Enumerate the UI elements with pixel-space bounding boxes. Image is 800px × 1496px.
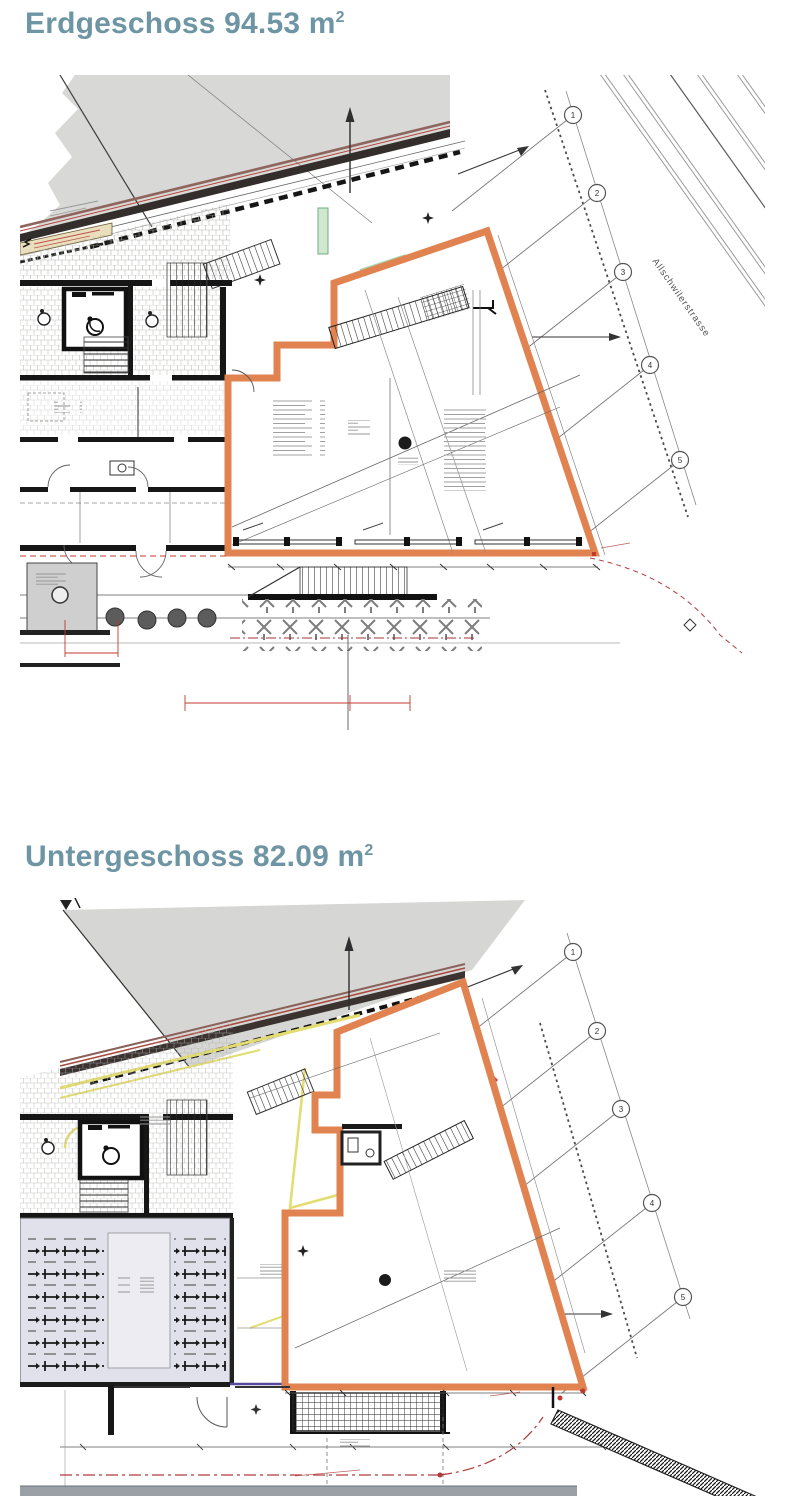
stair-run xyxy=(84,337,128,373)
svg-text:3: 3 xyxy=(621,268,626,277)
wc-room xyxy=(342,1132,380,1164)
floor-name: Erdgeschoss xyxy=(25,7,216,40)
axis-marker-3: 3 xyxy=(613,1101,630,1118)
axis-marker-1: 1 xyxy=(565,107,582,124)
floor-name: Untergeschoss xyxy=(25,840,244,873)
retaining-wall xyxy=(551,1410,755,1496)
bollard xyxy=(198,609,216,627)
annotation-block xyxy=(444,1268,476,1282)
axis-marker-4: 4 xyxy=(644,1195,661,1212)
star-symbol xyxy=(251,1404,262,1415)
room-label xyxy=(118,1276,154,1294)
stair-run xyxy=(247,1069,313,1114)
door-swing xyxy=(48,465,70,487)
star-symbol xyxy=(422,212,434,224)
svg-text:2: 2 xyxy=(595,1027,600,1036)
street-label: Allschwilerstrasse xyxy=(650,256,713,339)
room-label xyxy=(348,420,370,436)
unit-outline xyxy=(285,982,583,1387)
star-symbol xyxy=(254,274,266,286)
svg-text:1: 1 xyxy=(571,111,576,120)
sidewalk-area xyxy=(20,563,696,730)
floorplan-drawing-erdgeschoss: Allschwilerstrasse 1 2 3 4 5 xyxy=(20,75,765,765)
property-boundary xyxy=(545,90,688,517)
plan-cut-edge xyxy=(20,1486,577,1496)
axis-marker-2: 2 xyxy=(589,185,606,202)
bike-racks xyxy=(174,1238,226,1376)
structural-column xyxy=(399,437,412,450)
room-label xyxy=(260,1264,282,1278)
stair-run xyxy=(80,1180,128,1212)
bollard xyxy=(138,611,156,629)
axis-marker-5: 5 xyxy=(675,1289,692,1306)
bike-stands xyxy=(242,599,482,651)
door-swing xyxy=(136,551,162,577)
floor-area-exponent: 2 xyxy=(364,842,373,859)
annotation-block xyxy=(444,407,486,491)
svg-text:5: 5 xyxy=(681,1293,686,1302)
left-wing xyxy=(20,1023,314,1387)
bollard xyxy=(106,608,124,626)
column-label xyxy=(398,457,418,465)
neighbor-building xyxy=(20,75,450,237)
diamond-symbol xyxy=(684,619,696,631)
door-swing xyxy=(140,551,166,577)
axis-marker-5: 5 xyxy=(672,452,689,469)
floor-area-unit: m xyxy=(309,7,336,40)
lower-area xyxy=(20,1385,755,1496)
railing xyxy=(300,567,407,597)
axis-marker-4: 4 xyxy=(642,357,659,374)
stair-run xyxy=(167,1100,207,1175)
door-swing xyxy=(197,1397,227,1427)
bike-racks xyxy=(28,1238,104,1376)
svg-text:1: 1 xyxy=(571,948,576,957)
svg-text:3: 3 xyxy=(619,1105,624,1114)
green-door xyxy=(318,208,328,254)
axis-marker-3: 3 xyxy=(615,264,632,281)
floor-area-exponent: 2 xyxy=(336,9,345,26)
svg-text:4: 4 xyxy=(648,361,653,370)
svg-text:5: 5 xyxy=(678,456,683,465)
bollard xyxy=(168,609,186,627)
grating xyxy=(293,1393,443,1431)
axis-marker-1: 1 xyxy=(565,944,582,961)
tree-pit xyxy=(27,563,97,633)
structural-column xyxy=(379,1274,391,1286)
svg-text:2: 2 xyxy=(595,189,600,198)
page-title-erdgeschoss: Erdgeschoss 94.53 m2 xyxy=(25,7,345,41)
stair-run xyxy=(167,263,207,337)
floor-area-unit: m xyxy=(338,840,365,873)
floor-area: 82.09 xyxy=(253,840,329,873)
page-title-untergeschoss: Untergeschoss 82.09 m2 xyxy=(25,840,374,874)
svg-text:4: 4 xyxy=(650,1199,655,1208)
floor-area: 94.53 xyxy=(224,7,300,40)
floorplan-drawing-untergeschoss: 1 2 3 4 5 xyxy=(20,898,765,1496)
bike-room xyxy=(20,1218,230,1383)
annotation-block xyxy=(273,400,325,456)
axis-marker-2: 2 xyxy=(589,1023,606,1040)
